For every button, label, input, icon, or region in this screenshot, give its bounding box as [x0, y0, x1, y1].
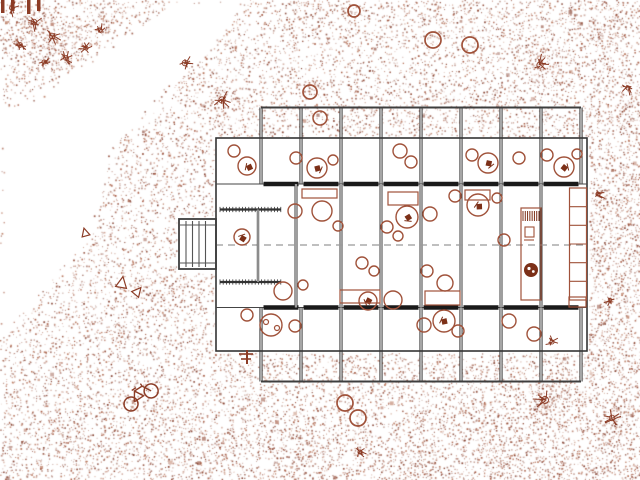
tree-icon — [425, 32, 441, 48]
corner-bar — [37, 0, 41, 11]
shrub-strokes — [604, 409, 621, 425]
shrub-strokes — [39, 58, 50, 68]
shrub-icon — [13, 41, 26, 50]
plant-marker — [239, 350, 253, 364]
shrub-icon — [596, 190, 605, 199]
triangle-outline — [132, 285, 145, 298]
plan-drawing-viewport — [0, 0, 640, 480]
tree-icon — [350, 410, 366, 426]
triangle-outline — [116, 276, 129, 289]
corner-bar — [11, 0, 15, 11]
triangle-mark — [80, 227, 90, 237]
shrub-icon — [622, 85, 632, 96]
shrub-icon — [604, 298, 615, 306]
shrub-strokes — [60, 51, 72, 64]
bicycle-frame — [128, 381, 151, 402]
stair-pad — [179, 219, 216, 269]
flower-blob-petal — [532, 270, 535, 273]
shrub-icon — [39, 58, 50, 68]
shrub-strokes — [533, 391, 547, 408]
triangle-outline — [80, 227, 90, 237]
shrub-strokes — [214, 91, 230, 109]
flower-blob-petal — [527, 267, 530, 270]
flower-blob — [524, 263, 538, 277]
bicycle-icon — [119, 377, 161, 414]
terrace-table — [313, 111, 327, 125]
corner-bar — [1, 0, 5, 13]
shrub-strokes — [535, 54, 549, 69]
shrub-icon — [95, 23, 105, 33]
tree-icon — [303, 85, 317, 99]
shrub-icon — [60, 51, 72, 64]
corner-bar — [27, 0, 31, 14]
shrub-icon — [604, 409, 621, 425]
shrub-strokes — [180, 56, 194, 69]
shrub-icon — [79, 43, 92, 53]
shrub-icon — [28, 18, 42, 32]
shrub-icon — [356, 447, 366, 457]
triangle-mark — [132, 285, 145, 298]
shrub-icon — [214, 91, 230, 109]
triangle-mark — [116, 276, 129, 289]
shrub-icon — [533, 391, 549, 408]
shrub-icon — [48, 30, 61, 44]
bicycle-wheel — [121, 394, 140, 413]
shrub-icon — [180, 56, 194, 69]
shrub-icon — [535, 54, 549, 69]
tree-icon — [348, 5, 360, 17]
tree-icon — [462, 37, 478, 53]
shrub-strokes — [79, 43, 92, 53]
plan-linework-layer — [0, 0, 640, 480]
tree-icon — [337, 395, 353, 411]
